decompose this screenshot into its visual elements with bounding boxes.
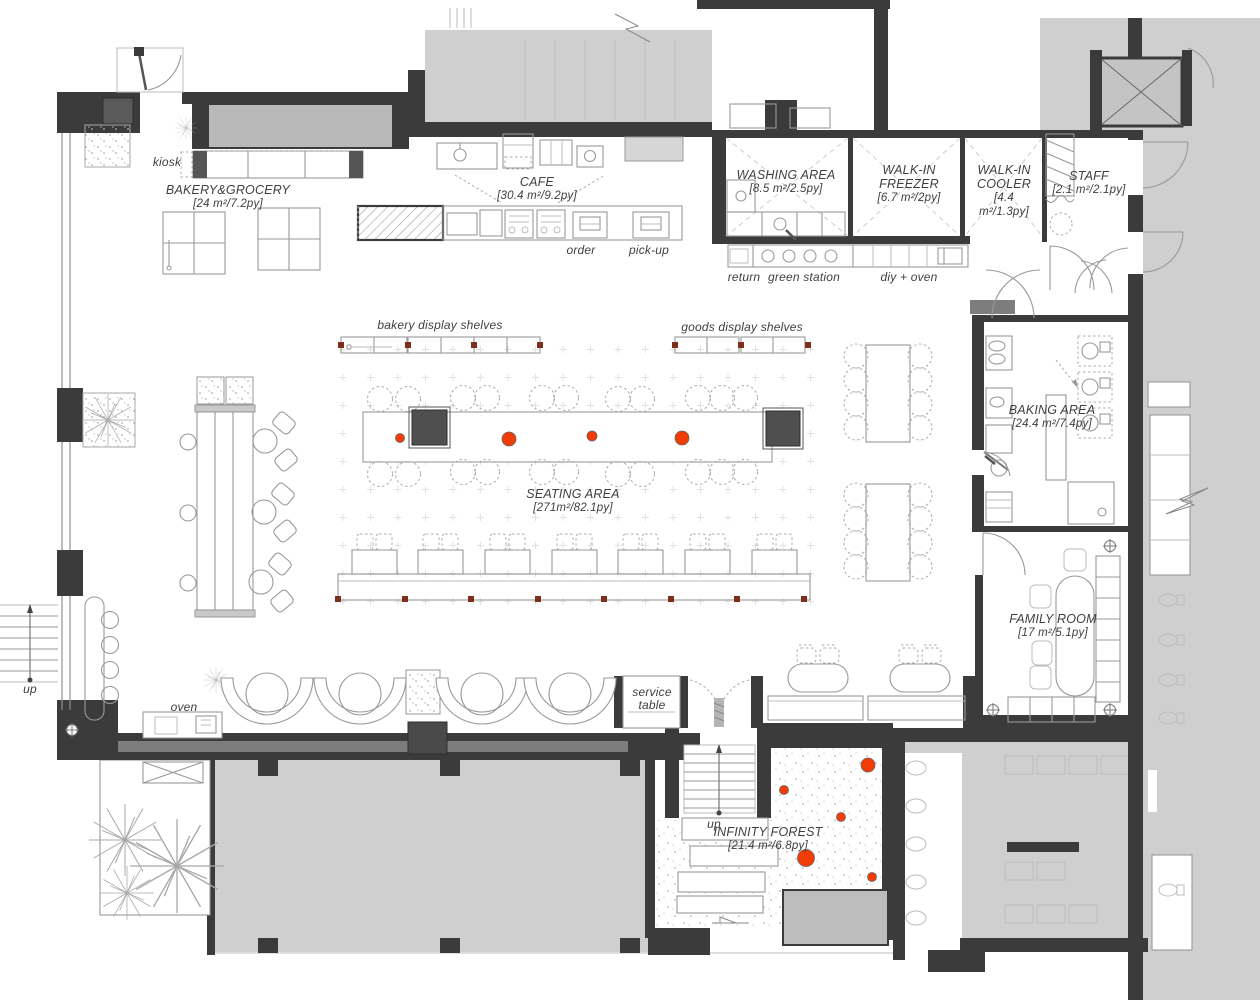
room-label-cafe: CAFE [30.4 m²/9.2py] — [497, 175, 577, 203]
annotation-pickup: pick-up — [629, 243, 669, 257]
annotation-diy-oven: diy + oven — [880, 270, 937, 284]
room-area: [8.5 m²/2.5py] — [726, 182, 846, 196]
round-table-set — [252, 481, 298, 543]
pickup-station — [633, 212, 669, 238]
room-area: [4.4 m²/1.3py] — [972, 191, 1036, 219]
room-label-bakery-grocery: BAKERY&GROCERY [24 m²/7.2py] — [153, 183, 303, 211]
floor-plan: BAKERY&GROCERY [24 m²/7.2py] CAFE [30.4 … — [0, 0, 1260, 1000]
room-area: [271m²/82.1py] — [526, 501, 619, 515]
group-table — [844, 483, 932, 581]
espresso-machine — [505, 210, 533, 238]
oval-table-set — [868, 645, 965, 720]
annotation-up-center: up — [707, 817, 721, 831]
annotation-order: order — [566, 243, 595, 257]
entrance-door — [117, 47, 183, 92]
room-name: WASHING AREA — [726, 168, 846, 182]
stairs-center — [684, 744, 755, 816]
annotation-up-left: up — [23, 682, 37, 696]
room-name: WALK-IN COOLER — [972, 163, 1036, 191]
room-label-family: FAMILY ROOM [17 m²/5.1py] — [988, 612, 1118, 640]
room-label-freezer: WALK-IN FREEZER [6.7 m²/2py] — [874, 163, 944, 205]
room-label-staff: STAFF [2.1 m²/2.1py] — [1039, 169, 1139, 197]
annotation-bakery-shelves: bakery display shelves — [377, 318, 502, 332]
room-name: SEATING AREA — [526, 487, 619, 501]
round-table-set — [253, 410, 299, 472]
stairs-left — [0, 604, 58, 683]
room-label-washing: WASHING AREA [8.5 m²/2.5py] — [726, 168, 846, 196]
back-counter — [728, 245, 968, 267]
room-area: [6.7 m²/2py] — [874, 191, 944, 205]
annotation-oven: oven — [171, 700, 198, 714]
cafe-counter — [358, 206, 682, 240]
annotation-service-table: service table — [626, 686, 678, 712]
window-long-table — [180, 377, 299, 617]
room-name: CAFE — [497, 175, 577, 189]
grocery-table — [163, 212, 225, 274]
floor-grid — [330, 332, 830, 620]
espresso-machine — [537, 210, 565, 238]
room-area: [17 m²/5.1py] — [988, 626, 1118, 640]
room-label-cooler: WALK-IN COOLER [4.4 m²/1.3py] — [972, 163, 1036, 219]
annotation-green-station: green station — [768, 270, 840, 284]
room-area: [24.4 m²/7.4py] — [997, 417, 1107, 431]
room-name: BAKING AREA — [997, 403, 1107, 417]
room-area: [2.1 m²/2.1py] — [1039, 183, 1139, 197]
room-label-baking: BAKING AREA [24.4 m²/7.4py] — [997, 403, 1107, 431]
oven-counter — [143, 712, 222, 738]
annotation-kiosk: kiosk — [153, 155, 181, 169]
round-table-set — [249, 551, 295, 613]
display-shelf — [181, 151, 363, 178]
annotation-goods-shelves: goods display shelves — [681, 320, 803, 334]
group-table — [844, 344, 932, 442]
room-name: WALK-IN FREEZER — [874, 163, 944, 191]
floorplan-drawing — [0, 0, 1260, 1000]
room-area: [21.4 m²/6.8py] — [683, 839, 853, 853]
room-name: FAMILY ROOM — [988, 612, 1118, 626]
room-name: BAKERY&GROCERY — [153, 183, 303, 197]
grocery-table — [258, 208, 320, 270]
annotation-return: return — [728, 270, 761, 284]
room-area: [30.4 m²/9.2py] — [497, 189, 577, 203]
room-name: STAFF — [1039, 169, 1139, 183]
oval-table-set — [768, 645, 863, 720]
room-area: [24 m²/7.2py] — [153, 197, 303, 211]
planters — [82, 125, 135, 447]
order-kiosk — [573, 212, 607, 238]
room-label-seating: SEATING AREA [271m²/82.1py] — [526, 487, 619, 515]
